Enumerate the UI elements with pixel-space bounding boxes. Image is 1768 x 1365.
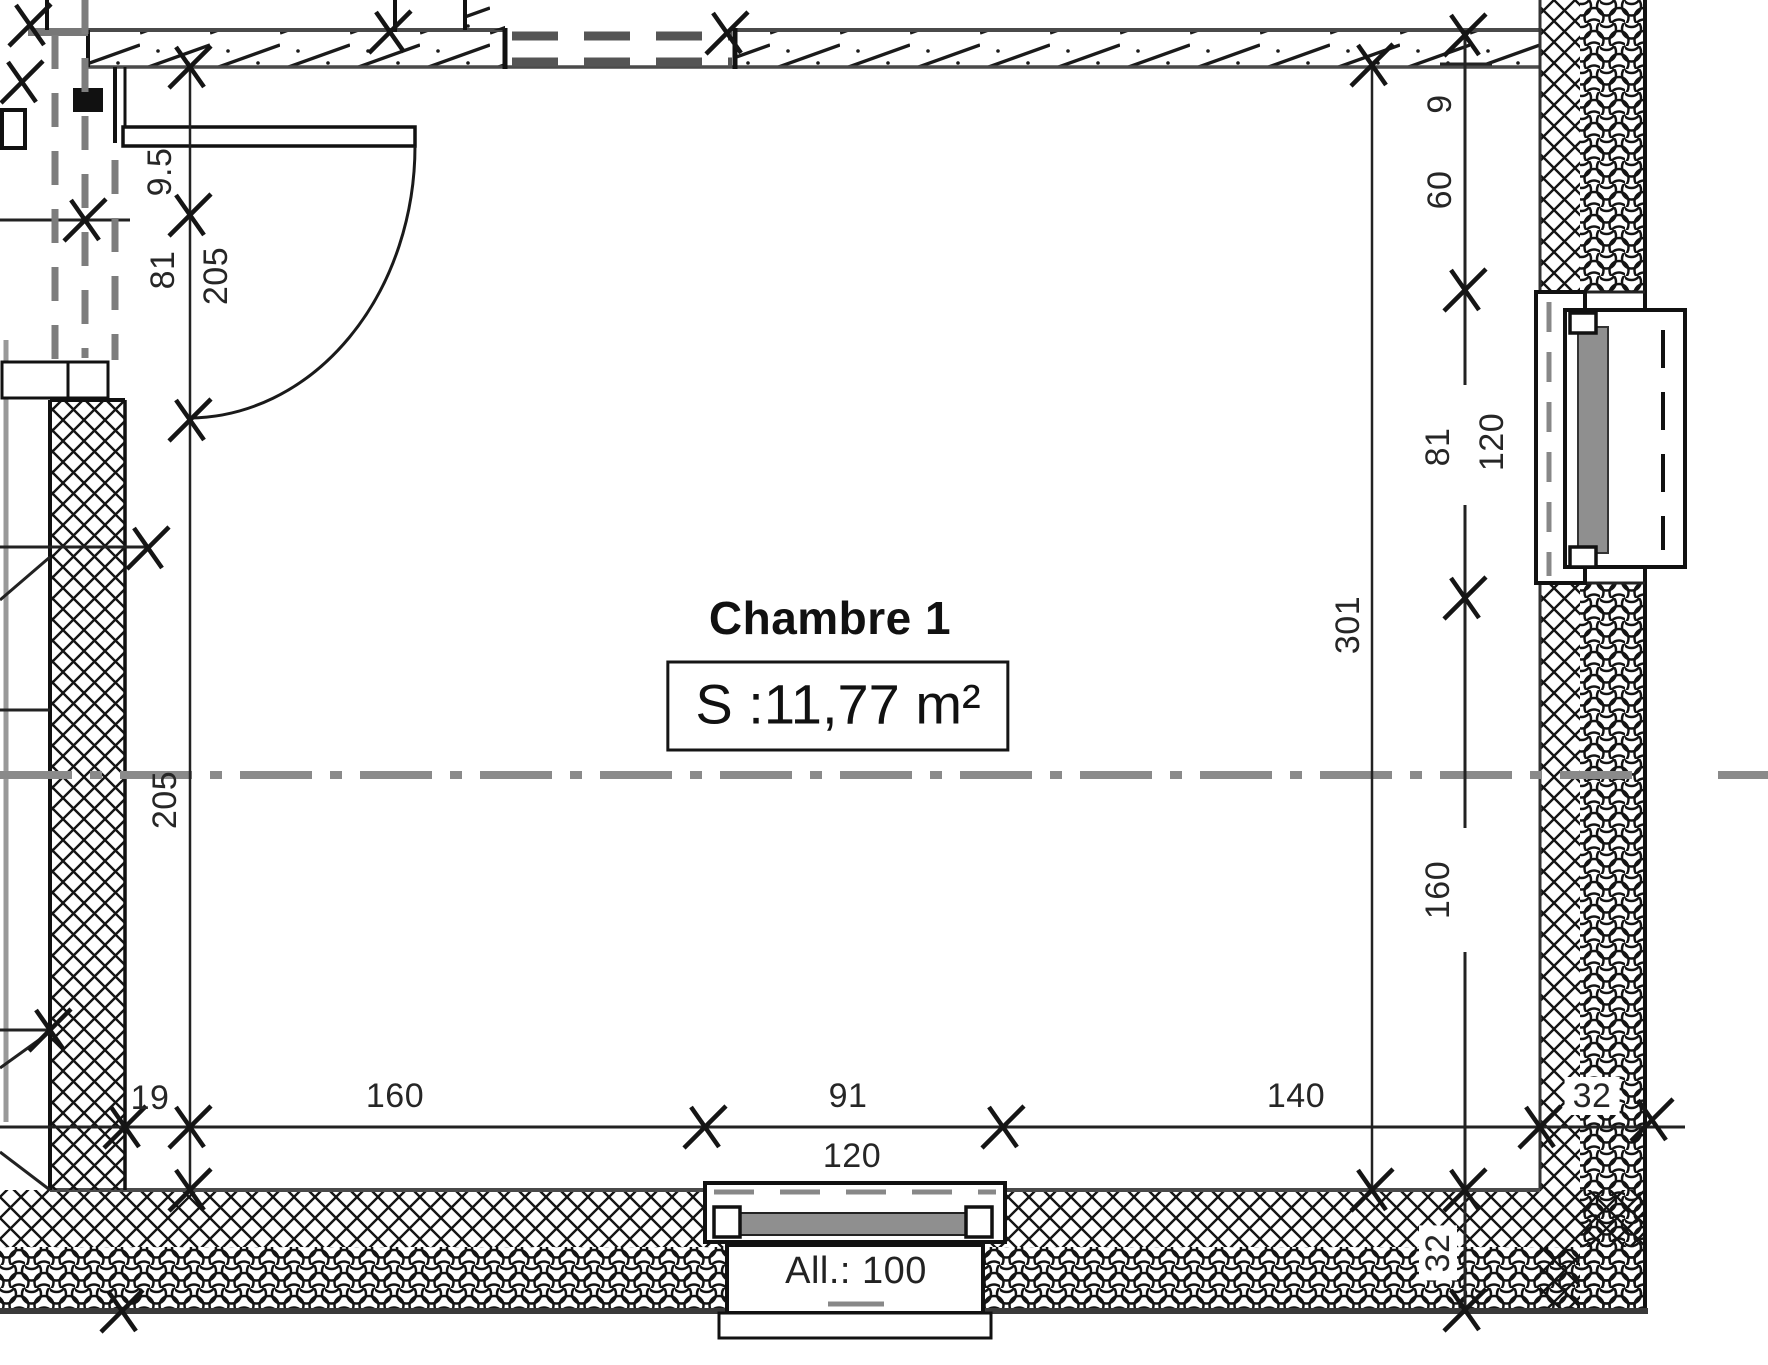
window-right <box>1536 292 1685 583</box>
dim-right-9: 9 <box>1423 94 1457 113</box>
dim-door-offset: 9.5 <box>143 148 177 197</box>
floor-plan: Chambre 1 S :11,77 m² 9.5 81 205 205 9 6… <box>0 0 1768 1365</box>
dim-right-60: 60 <box>1423 171 1457 210</box>
dim-bottom-wall-32: 32 <box>1565 1077 1620 1115</box>
dim-bottom-140: 140 <box>1267 1079 1325 1113</box>
dim-right-wall-32: 32 <box>1419 1226 1457 1281</box>
dim-bottom-160: 160 <box>366 1079 424 1113</box>
dim-window-right-height: 81 <box>1421 428 1455 467</box>
room-area-box: S :11,77 m² <box>666 661 1009 752</box>
door-leaf <box>123 127 415 146</box>
window-bottom-sash <box>723 1213 983 1235</box>
dim-left-wall-205: 205 <box>148 771 182 829</box>
dim-window-bottom-frame: 120 <box>823 1139 881 1173</box>
room-area: S :11,77 m² <box>695 673 980 736</box>
dim-door-width: 81 <box>146 251 180 290</box>
dim-right-160: 160 <box>1421 861 1455 919</box>
top-wall <box>88 0 1540 69</box>
dim-door-height: 205 <box>199 247 233 305</box>
room-name: Chambre 1 <box>709 595 951 641</box>
door <box>115 67 415 418</box>
left-wall <box>50 400 125 1190</box>
dim-window-right-width: 120 <box>1475 413 1509 471</box>
window-right-sash <box>1578 327 1608 553</box>
dim-right-301: 301 <box>1331 596 1365 654</box>
dim-bottom-19: 19 <box>131 1081 170 1115</box>
dim-window-bottom-width: 91 <box>829 1079 868 1113</box>
window-sill-label: All.: 100 <box>785 1252 927 1290</box>
